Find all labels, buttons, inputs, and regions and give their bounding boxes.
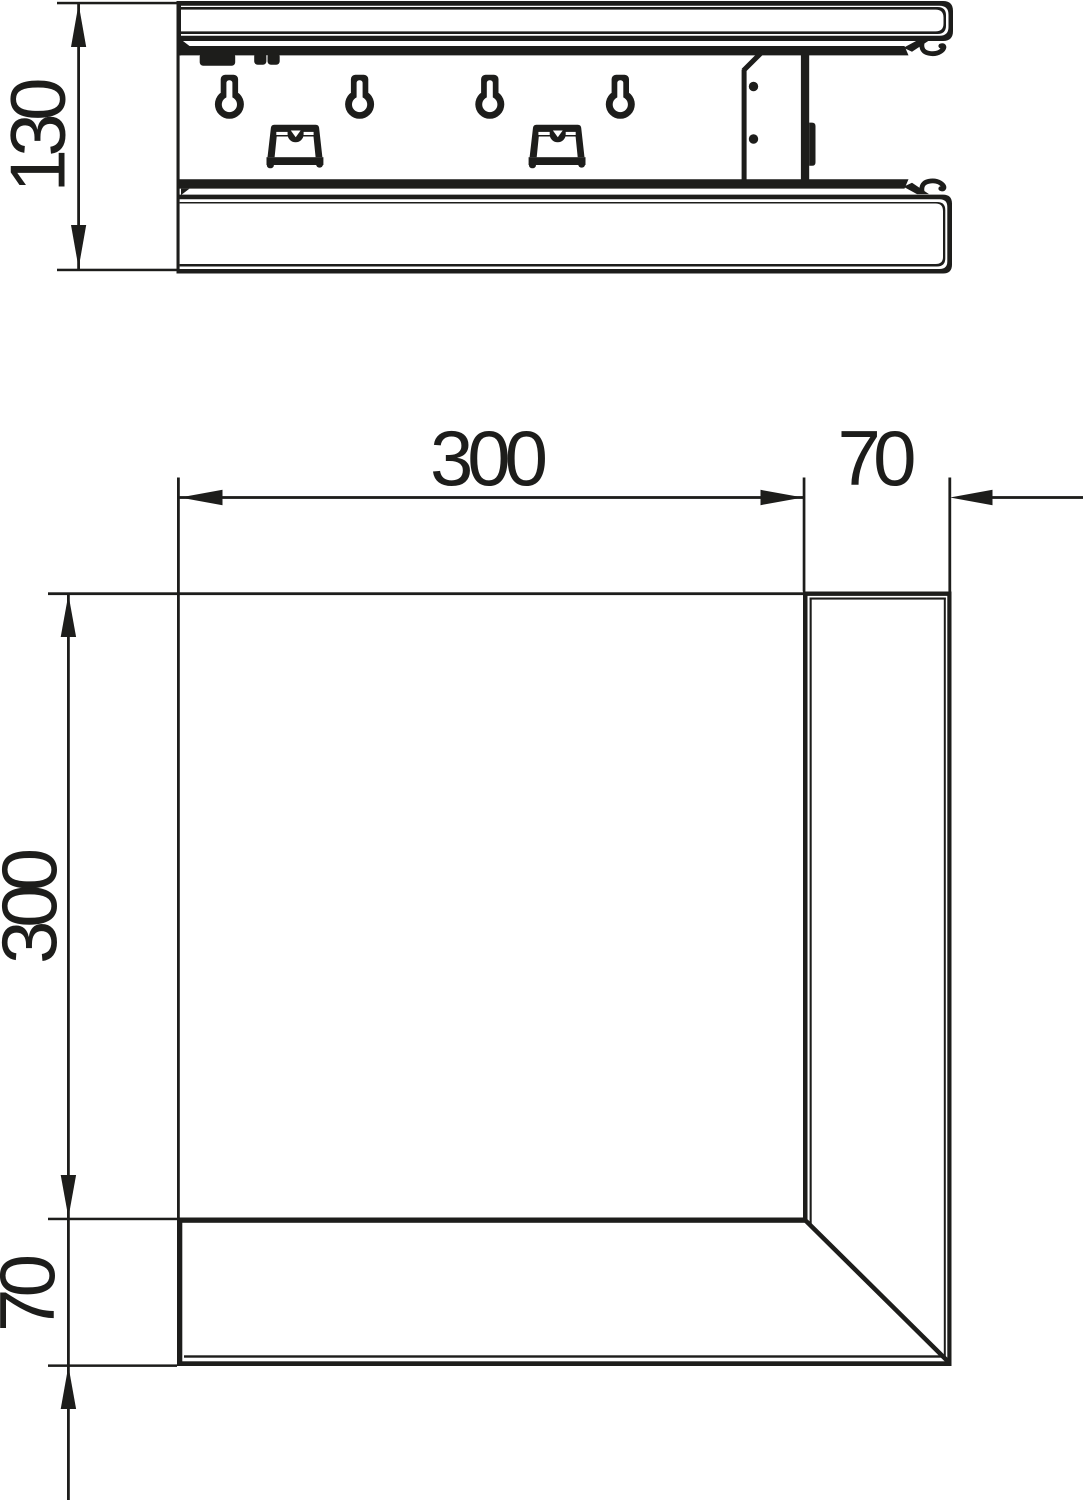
svg-text:70: 70 bbox=[0, 1254, 71, 1332]
svg-text:130: 130 bbox=[0, 78, 82, 193]
svg-text:300: 300 bbox=[430, 414, 548, 502]
svg-text:70: 70 bbox=[838, 414, 917, 502]
svg-text:300: 300 bbox=[0, 848, 73, 964]
